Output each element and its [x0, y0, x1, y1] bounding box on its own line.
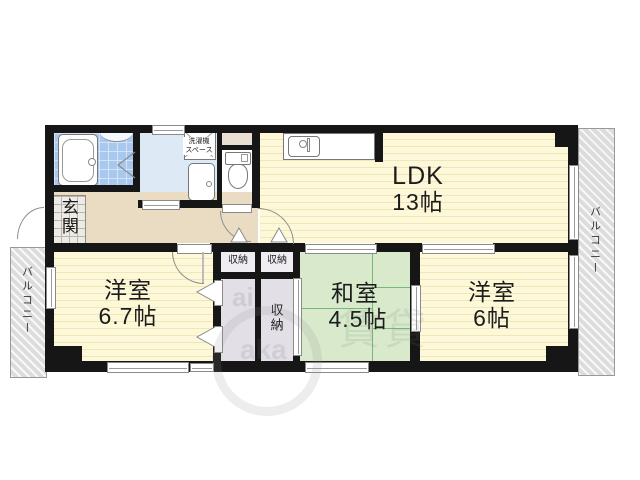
bedroom1-name: 洋室	[78, 278, 178, 302]
wall-storage1-bottom	[221, 272, 255, 279]
wall-bath-washroom	[133, 133, 140, 192]
bath-faucet-icon	[88, 158, 96, 166]
laundry-label: 洗濯機 スペース	[183, 137, 215, 155]
toilet-button	[241, 154, 248, 162]
kitchen-faucet-icon	[299, 140, 307, 148]
closet-door-bedroom1-b	[214, 326, 223, 353]
ldk-size: 13帖	[368, 190, 468, 214]
wall-storage2-bottom	[261, 272, 293, 279]
floorplan: バルコニー バルコニー 洗濯機 スペース	[0, 0, 640, 480]
washbasin-faucet	[206, 181, 212, 187]
balcony-left-label: バルコニー	[20, 266, 32, 336]
wall-corner-bottom-left	[54, 346, 82, 361]
bedroom1-door-leaf	[202, 252, 204, 283]
sliding-door-ldk-tatami	[305, 244, 377, 254]
window-bedroom1-balcony	[46, 267, 56, 309]
closet-door-tatami	[293, 278, 302, 356]
ldk-name: LDK	[368, 163, 468, 189]
wall-kitchen-stub	[375, 125, 383, 162]
wall-washroom-right	[217, 133, 222, 205]
toilet-bowl-icon	[228, 164, 248, 189]
closet-tall-1-floor	[221, 279, 255, 361]
wall-toilet-right	[252, 133, 260, 208]
window-closet-bottom	[190, 363, 214, 372]
bedroom1-size: 6.7帖	[73, 304, 183, 328]
entry-door-arc	[17, 207, 44, 239]
laundry-space-box: 洗濯機 スペース	[184, 131, 216, 160]
window-ldk-balcony	[569, 165, 579, 240]
closet-door-bedroom1-a	[214, 280, 223, 306]
window-top-washroom	[152, 125, 185, 135]
door-opening-bedroom2	[422, 244, 495, 254]
sliding-door-washroom	[142, 200, 180, 210]
tatami-name: 和室	[305, 281, 405, 305]
wall-corner-bottom-right	[546, 346, 568, 361]
kitchen-faucet-bar	[307, 138, 310, 152]
wall-mid-d	[493, 243, 573, 252]
wall-top	[45, 125, 578, 133]
bedroom2-name: 洋室	[442, 280, 542, 304]
storage-small-1-label: 収納	[221, 256, 255, 267]
window-tatami-bottom	[305, 362, 369, 373]
storage-small-2-label: 収納	[261, 256, 293, 267]
tatami-size: 4.5帖	[303, 307, 413, 331]
balcony-right-label: バルコニー	[588, 206, 600, 276]
window-bedroom1-bottom	[107, 362, 189, 373]
wall-bath-bottom	[54, 185, 140, 192]
wall-corner-top-right	[555, 125, 578, 147]
bedroom2-size: 6帖	[452, 306, 532, 330]
wall-mid-a	[45, 243, 177, 252]
window-bedroom2-balcony	[569, 255, 579, 329]
storage-tall-label: 収納	[269, 303, 283, 333]
entrance-label: 玄関	[59, 198, 77, 236]
wall-shaft-toilet	[222, 145, 252, 150]
